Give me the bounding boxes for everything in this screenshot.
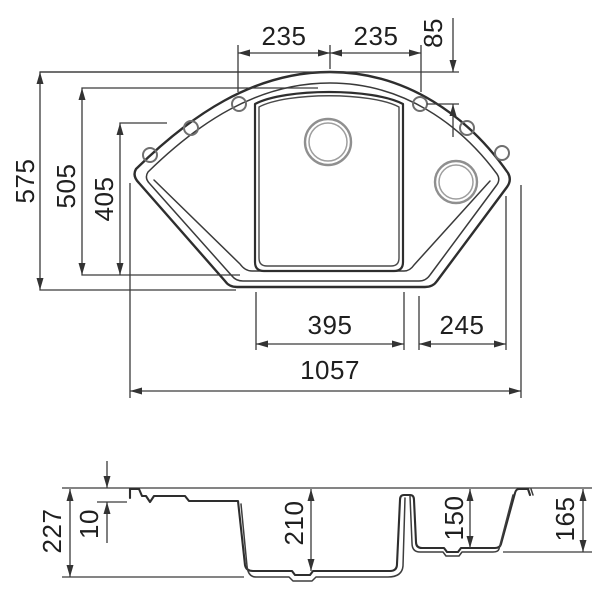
- dim-label-395: 395: [308, 310, 353, 340]
- arrowhead: [104, 476, 111, 488]
- arrowhead: [117, 263, 124, 275]
- dim-label-210: 210: [279, 501, 309, 546]
- section-profile-outer-main-bowl: [241, 498, 405, 581]
- corner-bowl-circle-inner: [439, 165, 473, 199]
- arrowhead: [37, 278, 44, 290]
- dim-label-505: 505: [51, 164, 81, 209]
- right-edge-outer-line: [531, 489, 533, 495]
- right-wing-fold-line: [393, 181, 490, 271]
- arrowhead: [580, 540, 587, 552]
- arrowhead: [117, 123, 124, 135]
- faucet-hole-right-3: [495, 146, 509, 160]
- dim-label-227: 227: [37, 509, 67, 554]
- dim-227: 227: [37, 489, 74, 577]
- arrowhead: [450, 104, 457, 116]
- arrowhead: [580, 489, 587, 501]
- arrowhead: [330, 50, 342, 57]
- arrowhead: [238, 50, 250, 57]
- dim-label-245: 245: [440, 310, 485, 340]
- arrowhead: [409, 50, 421, 57]
- dim-label-235-left: 235: [262, 21, 307, 51]
- dim-150: 150: [439, 489, 474, 548]
- arrowhead: [130, 388, 142, 395]
- dim-label-85: 85: [418, 18, 448, 48]
- dim-label-575: 575: [10, 159, 40, 204]
- arrowhead: [79, 88, 86, 100]
- arrowhead: [318, 50, 330, 57]
- corner-bowl-circle-outer: [435, 161, 477, 203]
- dim-label-1057: 1057: [300, 355, 360, 385]
- arrowhead: [308, 489, 315, 501]
- dim-label-10: 10: [74, 509, 104, 539]
- dim-165: 165: [550, 489, 587, 552]
- section-view: 227 10 210 150 165: [37, 461, 592, 581]
- dim-label-405: 405: [89, 177, 119, 222]
- main-bowl-drain-circle-outer: [305, 119, 351, 165]
- arrowhead: [37, 72, 44, 84]
- arrowhead: [392, 341, 404, 348]
- dim-label-150: 150: [439, 496, 469, 541]
- dim-395: 395: [256, 292, 404, 350]
- arrowhead: [494, 341, 506, 348]
- main-bowl-drain-circle-inner: [309, 123, 347, 161]
- arrowhead: [79, 263, 86, 275]
- arrowhead: [67, 489, 74, 501]
- main-bowl-inner-line: [259, 96, 399, 266]
- arrowhead: [104, 502, 111, 514]
- dim-405: 405: [89, 123, 167, 275]
- left-wing-fold-line: [154, 180, 265, 271]
- plan-view: 235 235 85 575: [10, 18, 521, 398]
- arrowhead: [509, 388, 521, 395]
- drawing-canvas: 235 235 85 575: [0, 0, 600, 600]
- arrowhead: [419, 341, 431, 348]
- dim-210: 210: [279, 489, 315, 571]
- arrowhead: [67, 565, 74, 577]
- dim-label-165: 165: [550, 497, 580, 542]
- arrowhead: [450, 60, 457, 72]
- arrowhead: [256, 341, 268, 348]
- dim-235-right: 235: [330, 21, 421, 92]
- dim-label-235-right: 235: [354, 21, 399, 51]
- arrowhead: [308, 559, 315, 571]
- dim-235-left: 235: [238, 21, 330, 92]
- sink-technical-drawing: 235 235 85 575: [0, 0, 600, 600]
